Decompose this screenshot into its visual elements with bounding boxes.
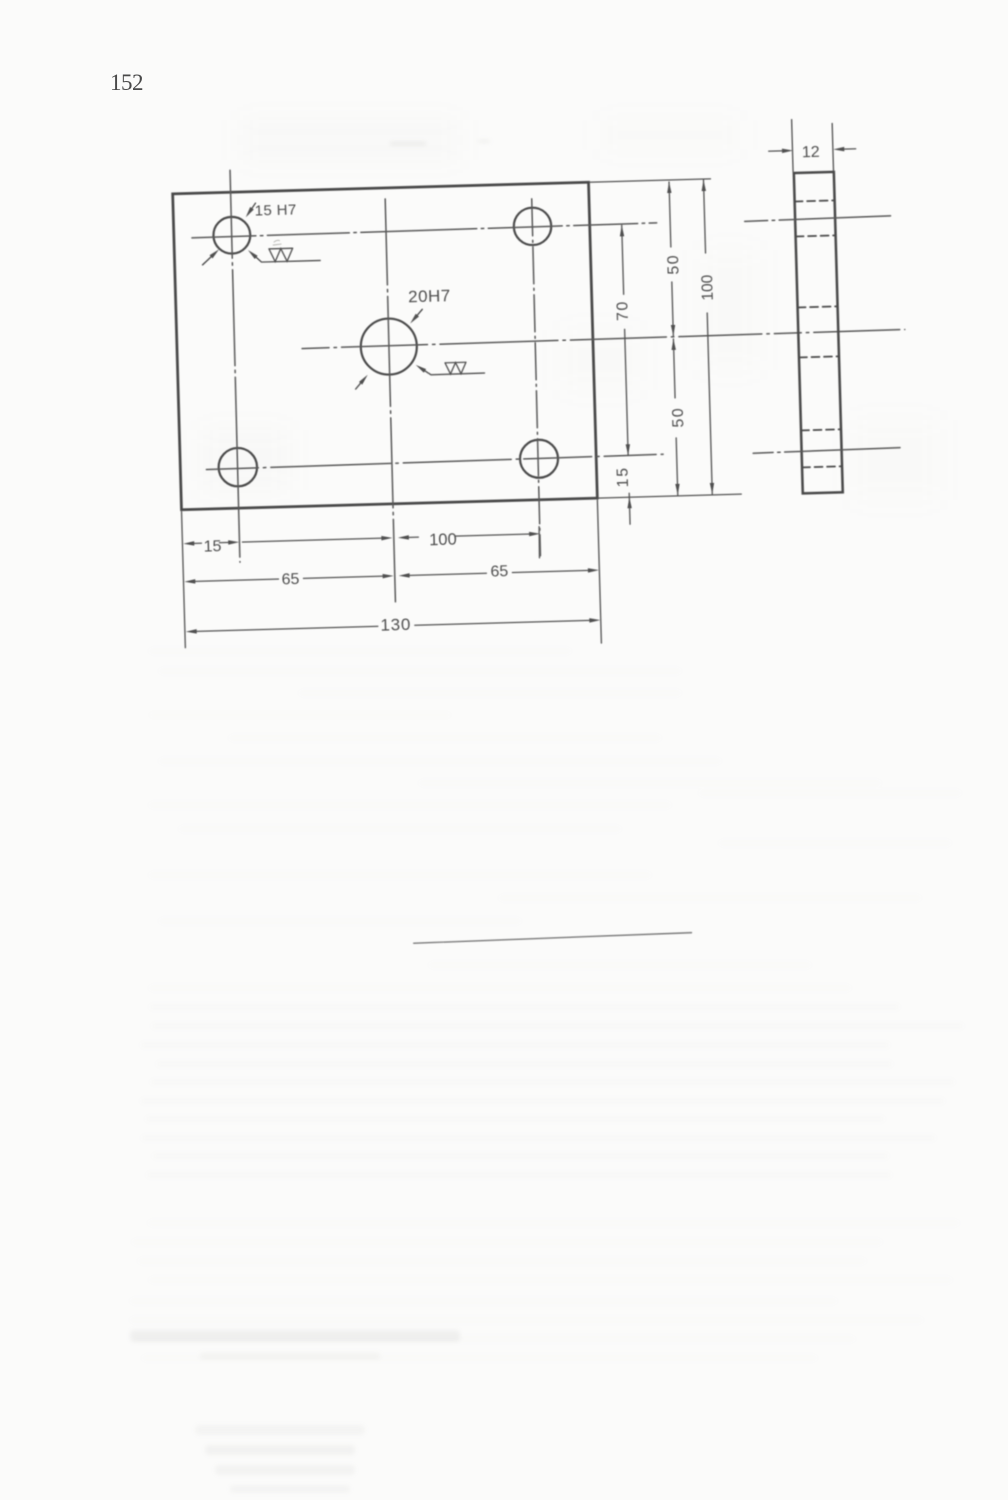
svg-text:50: 50 [670,407,688,428]
svg-text:20H7: 20H7 [408,286,451,306]
svg-text:70: 70 [614,300,632,321]
svg-text:15: 15 [615,466,633,488]
svg-text:50: 50 [665,254,683,275]
svg-text:152: 152 [110,70,143,95]
svg-text:12: 12 [802,144,820,161]
svg-text:65: 65 [281,571,299,588]
svg-text:100: 100 [699,274,717,301]
svg-text:130: 130 [380,615,411,635]
svg-text:15 H7: 15 H7 [254,201,296,219]
svg-text:65: 65 [490,563,508,580]
svg-text:100: 100 [429,531,457,550]
svg-text:15: 15 [203,538,221,555]
